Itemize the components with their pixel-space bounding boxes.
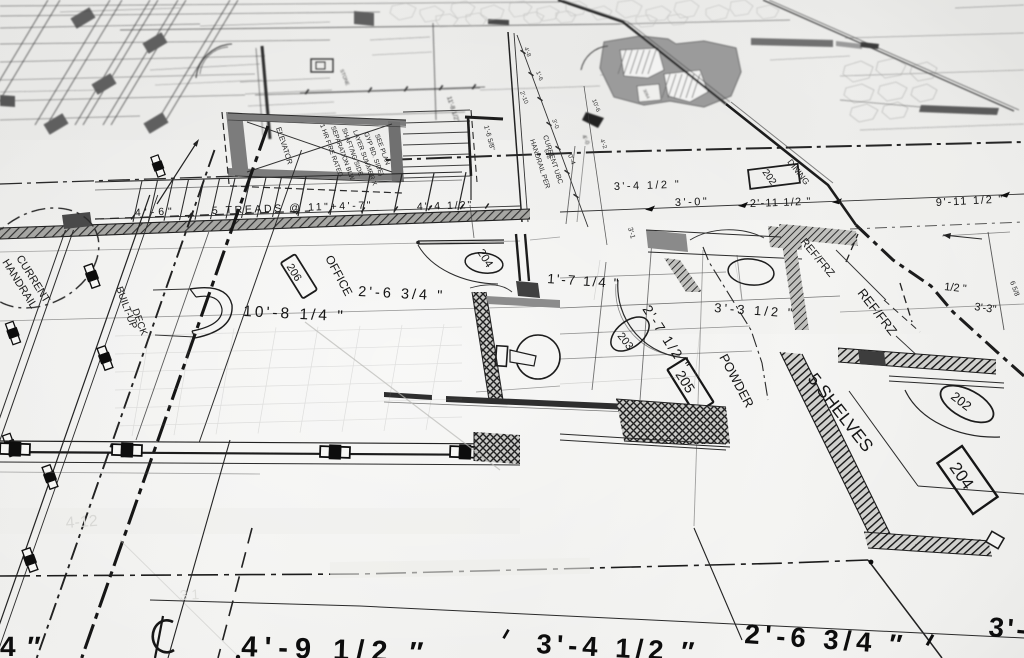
svg-text:2'-11 1/2 ": 2'-11 1/2 ": [750, 196, 812, 210]
svg-text:3'-4 1/2 ": 3'-4 1/2 ": [614, 179, 682, 193]
svg-text:4-12: 4-12: [65, 513, 98, 532]
svg-text:3 1: 3 1: [179, 586, 199, 603]
svg-text:3'-0": 3'-0": [675, 196, 710, 209]
svg-text:1/2 ": 1/2 ": [944, 281, 967, 295]
svg-text:4 ″: 4 ″: [0, 631, 43, 658]
svg-text:3'-: 3'-: [987, 611, 1024, 645]
